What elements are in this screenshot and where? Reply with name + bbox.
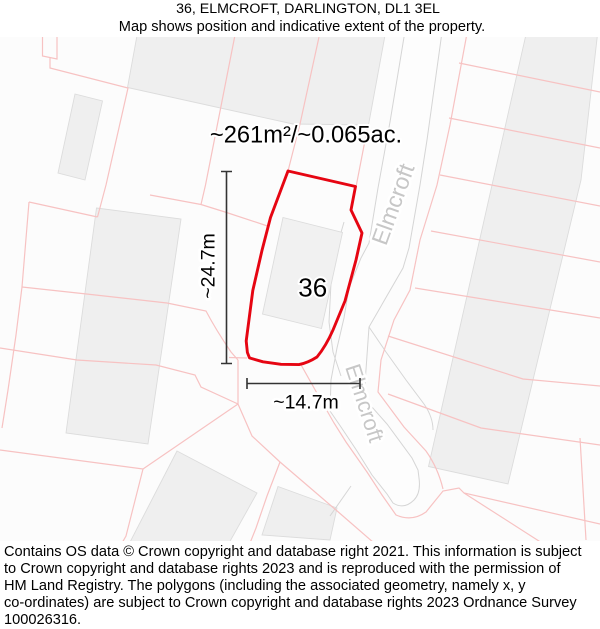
svg-text:~261m²/~0.065ac.: ~261m²/~0.065ac.: [210, 123, 402, 149]
svg-text:~14.7m: ~14.7m: [273, 392, 339, 414]
svg-text:36: 36: [298, 273, 327, 303]
svg-text:~24.7m: ~24.7m: [198, 233, 220, 299]
